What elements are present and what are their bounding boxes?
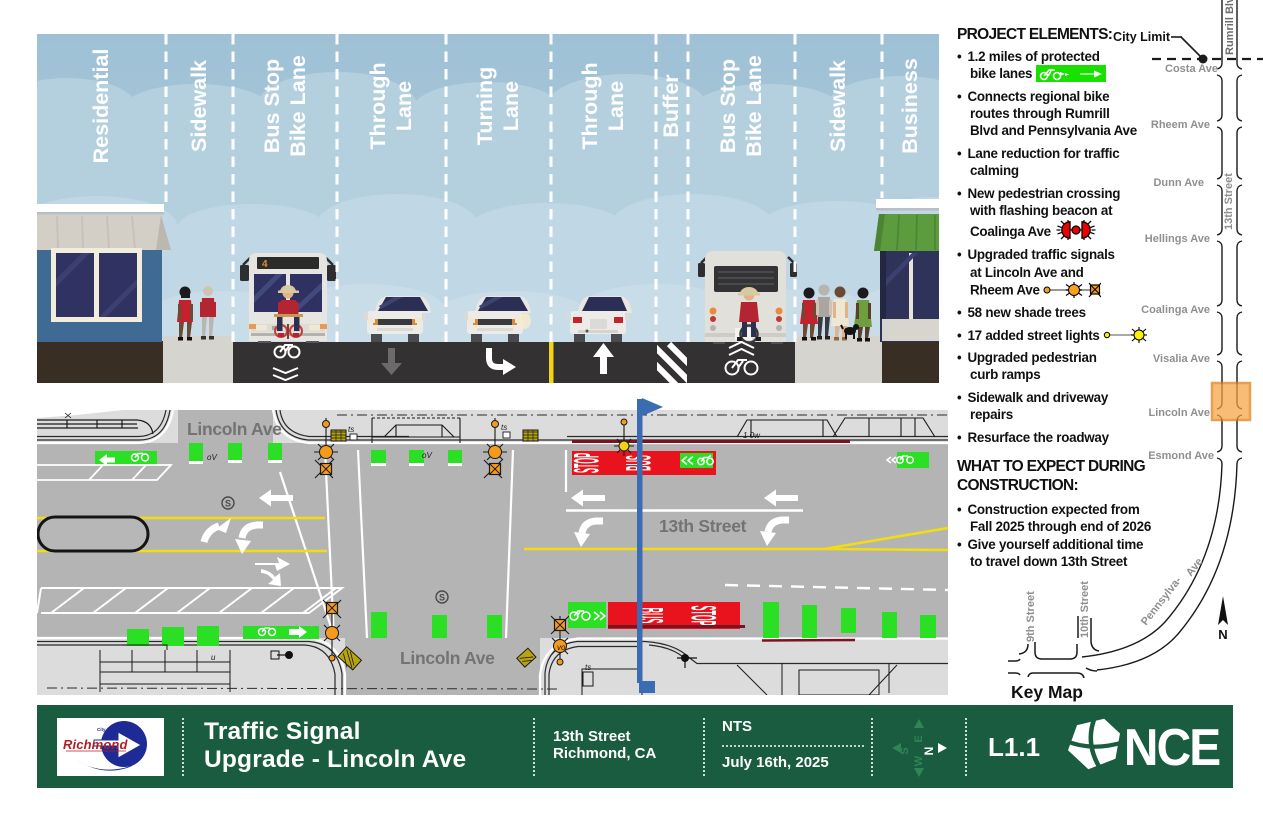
- svg-text:S: S: [225, 499, 231, 509]
- svg-text:STOP: STOP: [683, 605, 722, 625]
- svg-text:Business: Business: [898, 58, 922, 154]
- svg-text:N: N: [1218, 627, 1227, 642]
- svg-text:Costa Ave: Costa Ave: [1165, 63, 1218, 75]
- svg-text:Through: Through: [578, 62, 602, 149]
- svg-text:Sidewalk: Sidewalk: [826, 60, 850, 152]
- svg-text:Bus Stop: Bus Stop: [716, 59, 740, 153]
- svg-text:Bike Lane: Bike Lane: [742, 55, 766, 157]
- svg-text:STOP: STOP: [568, 453, 607, 473]
- svg-text:Visalia Ave: Visalia Ave: [1153, 353, 1210, 365]
- svg-text:13th Street: 13th Street: [1223, 173, 1235, 230]
- svg-text:Richmond: Richmond: [63, 737, 128, 752]
- svg-text:Rheem Ave: Rheem Ave: [1151, 119, 1210, 131]
- svg-text:N: N: [922, 747, 936, 756]
- svg-text:E: E: [913, 735, 925, 742]
- svg-text:ts: ts: [348, 425, 354, 434]
- svg-text:Rumrill Blvd: Rumrill Blvd: [1224, 0, 1236, 55]
- svg-text:ts: ts: [501, 423, 507, 432]
- svg-text:Lincoln Ave: Lincoln Ave: [1148, 407, 1210, 419]
- svg-text:City Limit: City Limit: [1113, 30, 1171, 44]
- svg-text:1 0w: 1 0w: [743, 431, 761, 440]
- svg-text:Lincoln Ave: Lincoln Ave: [400, 648, 495, 668]
- svg-text:Hellings Ave: Hellings Ave: [1145, 233, 1210, 245]
- svg-text:Lane: Lane: [499, 81, 523, 131]
- svg-text:Buffer: Buffer: [659, 74, 683, 138]
- svg-text:9th Street: 9th Street: [1025, 591, 1037, 642]
- svg-text:Esmond Ave: Esmond Ave: [1148, 450, 1214, 462]
- svg-text:Dunn Ave: Dunn Ave: [1153, 177, 1204, 189]
- svg-text:u: u: [211, 653, 216, 662]
- svg-text:S: S: [439, 593, 445, 603]
- svg-text:Sidewalk: Sidewalk: [187, 60, 211, 152]
- svg-text:S: S: [899, 747, 911, 754]
- svg-text:Lane: Lane: [604, 81, 628, 131]
- svg-text:10th Street: 10th Street: [1079, 581, 1091, 638]
- svg-text:City of: City of: [97, 727, 112, 732]
- svg-text:oV: oV: [207, 453, 217, 462]
- svg-text:Pennsylva-: Pennsylva-: [1139, 574, 1184, 627]
- svg-text:oV: oV: [422, 451, 432, 460]
- svg-text:ts: ts: [585, 663, 591, 672]
- svg-text:Ave: Ave: [1184, 556, 1206, 579]
- svg-text:Residential: Residential: [89, 49, 113, 164]
- svg-text:NCE: NCE: [1124, 718, 1220, 774]
- svg-text:Key Map: Key Map: [1011, 682, 1083, 702]
- svg-text:Bus Stop: Bus Stop: [260, 59, 284, 153]
- svg-text:Turning: Turning: [473, 67, 497, 145]
- svg-text:Through: Through: [366, 62, 390, 149]
- svg-text:Coalinga Ave: Coalinga Ave: [1141, 304, 1210, 316]
- svg-text:W: W: [913, 755, 925, 766]
- svg-text:4: 4: [262, 259, 268, 270]
- svg-text:Lane: Lane: [392, 81, 416, 131]
- svg-text:Lincoln Ave: Lincoln Ave: [187, 419, 282, 439]
- svg-text:vo: vo: [557, 643, 566, 652]
- svg-text:Bike Lane: Bike Lane: [286, 55, 310, 157]
